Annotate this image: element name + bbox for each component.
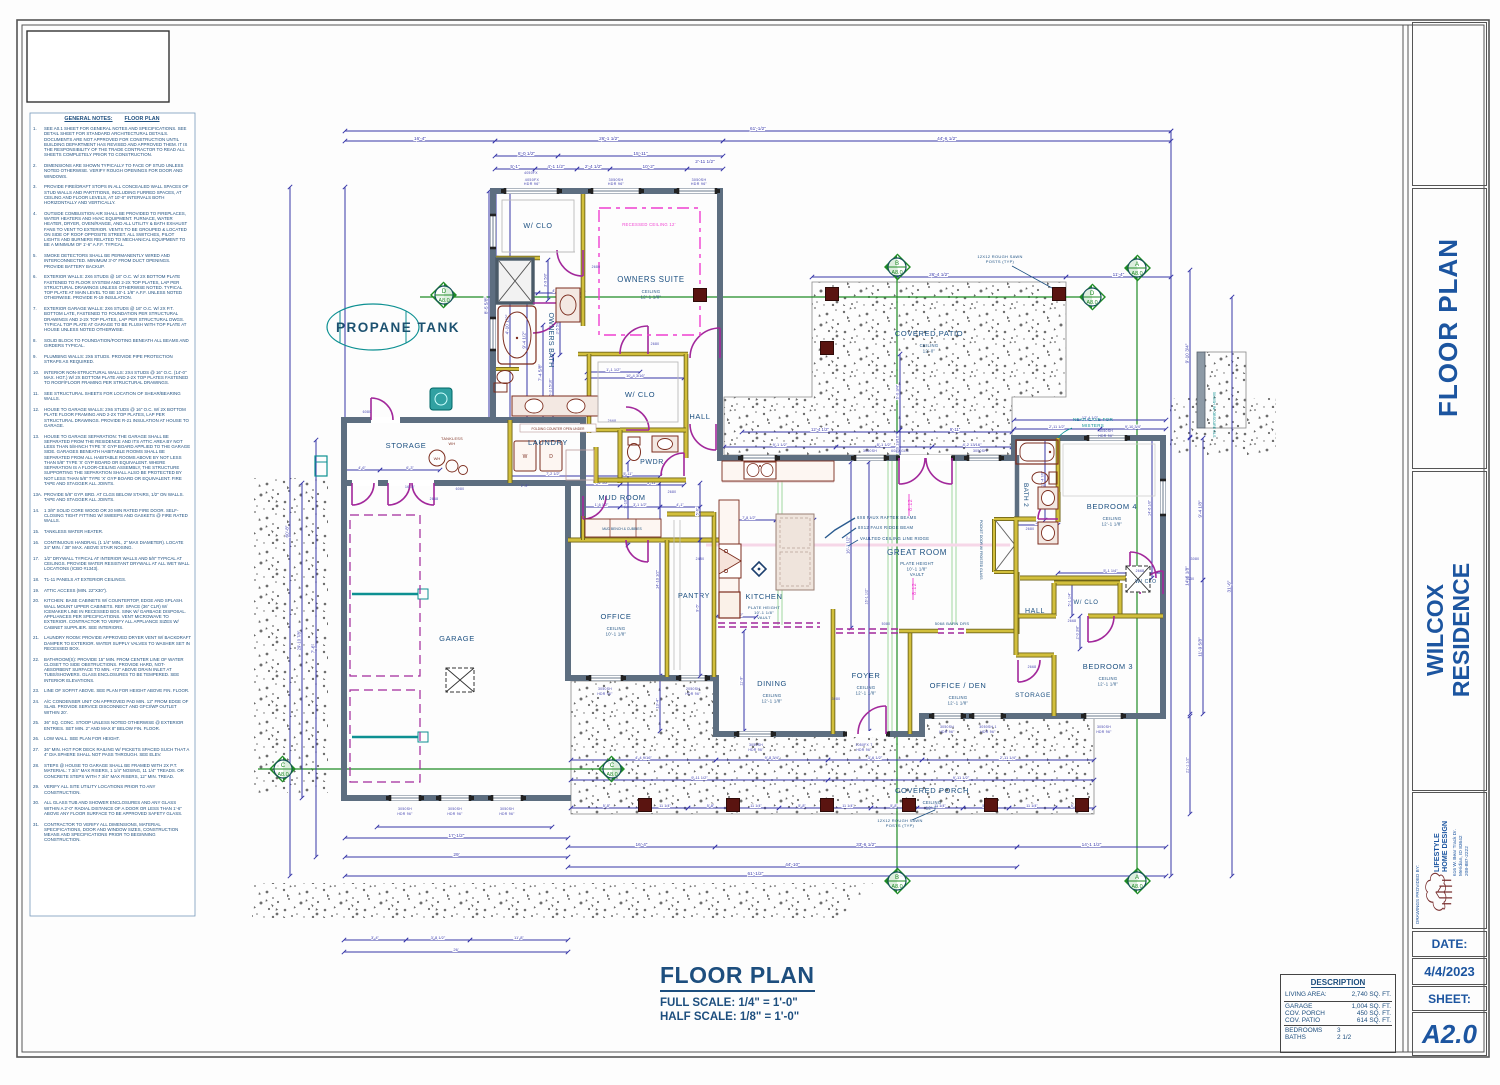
svg-text:VAULT: VAULT: [757, 615, 771, 620]
svg-text:HDR 96": HDR 96": [1096, 730, 1112, 734]
svg-text:VAULTED CEILING LINE RIDGE: VAULTED CEILING LINE RIDGE: [860, 536, 929, 541]
svg-text:7'-8 1/2": 7'-8 1/2": [742, 516, 756, 520]
svg-text:5'-8": 5'-8": [890, 804, 898, 808]
svg-text:3'-8 1/2": 3'-8 1/2": [431, 935, 446, 940]
svg-text:FOLDING COUNTER OPEN UNDER: FOLDING COUNTER OPEN UNDER: [532, 427, 586, 431]
svg-text:3050SH: 3050SH: [940, 725, 954, 729]
svg-text:2680: 2680: [651, 342, 660, 346]
svg-text:CEILING: CEILING: [763, 693, 782, 698]
svg-text:B: B: [895, 875, 899, 881]
svg-text:5040SH W/ OBSCURE GLS: 5040SH W/ OBSCURE GLS: [1212, 392, 1216, 438]
svg-text:4'-2 13/16": 4'-2 13/16": [962, 442, 982, 447]
svg-text:CEILING: CEILING: [949, 695, 968, 700]
svg-text:9'-1 1/2": 9'-1 1/2": [773, 442, 788, 447]
svg-text:3080: 3080: [1191, 557, 1200, 561]
svg-text:11'-8": 11'-8": [514, 935, 524, 940]
svg-text:6080: 6080: [456, 487, 465, 491]
svg-text:8'-1 1/2": 8'-1 1/2": [877, 442, 892, 447]
svg-text:11'-4": 11'-4": [1113, 272, 1125, 277]
svg-text:HDR 96": HDR 96": [748, 748, 764, 752]
svg-text:11'-9": 11'-9": [740, 676, 744, 686]
svg-text:CEILING: CEILING: [923, 800, 942, 805]
svg-text:STORAGE: STORAGE: [386, 441, 427, 450]
svg-text:4'-6": 4'-6": [358, 466, 366, 470]
svg-text:10'-4 3/16": 10'-4 3/16": [626, 373, 646, 378]
svg-text:2668: 2668: [430, 497, 439, 501]
svg-text:HDR 96": HDR 96": [597, 692, 613, 696]
svg-text:11 1/4": 11 1/4": [659, 804, 671, 808]
svg-text:3050SH: 3050SH: [749, 743, 763, 747]
svg-text:A8.0: A8.0: [438, 298, 449, 304]
svg-text:16'-1 1/2": 16'-1 1/2": [865, 588, 869, 605]
svg-text:3'-4": 3'-4": [371, 935, 380, 940]
svg-text:D: D: [442, 289, 447, 295]
svg-text:14'-10 1/2": 14'-10 1/2": [655, 569, 660, 589]
svg-text:2668: 2668: [1028, 665, 1037, 669]
svg-text:3'-6 1/2": 3'-6 1/2": [868, 755, 883, 760]
svg-text:LAUNDRY: LAUNDRY: [528, 438, 568, 447]
svg-text:7'-6": 7'-6": [311, 643, 316, 653]
svg-text:A8.0: A8.0: [1086, 300, 1097, 306]
svg-text:CEILING: CEILING: [642, 289, 661, 294]
svg-text:KITCHEN: KITCHEN: [745, 592, 782, 601]
svg-text:2'-11 1/4": 2'-11 1/4": [1000, 755, 1017, 760]
svg-text:2680: 2680: [668, 490, 677, 494]
svg-text:BATH 2: BATH 2: [1022, 483, 1029, 507]
svg-text:OWNERS SUITE: OWNERS SUITE: [617, 275, 684, 284]
svg-text:1050FX 7: 1050FX 7: [855, 743, 872, 747]
svg-text:5'-11": 5'-11": [623, 472, 633, 476]
svg-text:D: D: [1090, 291, 1095, 297]
svg-text:9'-4 1/8": 9'-4 1/8": [1198, 500, 1203, 518]
svg-text:CEILING: CEILING: [607, 626, 626, 631]
svg-text:MUD ROOM: MUD ROOM: [598, 493, 645, 502]
svg-text:2'-0 3/8": 2'-0 3/8": [1076, 625, 1080, 639]
svg-text:10'-2": 10'-2": [643, 164, 655, 169]
svg-text:WH: WH: [434, 456, 441, 461]
svg-text:3080: 3080: [1186, 577, 1195, 581]
svg-text:60'-8": 60'-8": [285, 525, 290, 537]
svg-text:POCKET DOOR W/ FROSTED GLASS: POCKET DOOR W/ FROSTED GLASS: [979, 520, 983, 580]
svg-text:11'-9 5/8": 11'-9 5/8": [1198, 637, 1203, 657]
svg-text:2'-11 1/2": 2'-11 1/2": [1049, 424, 1066, 429]
svg-text:OFFICE / DEN: OFFICE / DEN: [930, 681, 987, 690]
svg-text:W/ CLO: W/ CLO: [1074, 600, 1099, 606]
svg-text:12'-0": 12'-0": [923, 349, 936, 354]
svg-text:4'-1 1/2": 4'-1 1/2": [547, 164, 565, 169]
svg-text:13'-4": 13'-4": [655, 698, 660, 709]
svg-text:3050SH: 3050SH: [500, 807, 514, 811]
svg-text:12'-1 1/8": 12'-1 1/8": [948, 701, 969, 706]
svg-text:COVERED PATIO: COVERED PATIO: [895, 329, 963, 338]
svg-text:9'-10 3/4": 9'-10 3/4": [1185, 343, 1190, 363]
svg-text:VAULT: VAULT: [910, 572, 925, 577]
svg-text:44'-6 1/2": 44'-6 1/2": [937, 136, 957, 141]
svg-text:HDR 96": HDR 96": [608, 182, 625, 186]
svg-text:OFFICE: OFFICE: [600, 612, 631, 621]
svg-text:2680: 2680: [1026, 527, 1035, 531]
svg-text:3050SH: 3050SH: [973, 449, 987, 453]
svg-text:A8.0: A8.0: [891, 270, 902, 276]
svg-text:A8.0: A8.0: [277, 772, 288, 778]
svg-text:1'-6 1/2": 1'-6 1/2": [595, 503, 609, 507]
svg-text:14'-1 1/2": 14'-1 1/2": [1082, 842, 1102, 847]
svg-text:61'-1/2": 61'-1/2": [750, 126, 766, 131]
svg-text:A8.0: A8.0: [1131, 884, 1142, 890]
svg-text:11 1/4": 11 1/4": [842, 804, 854, 808]
svg-text:HDR 96": HDR 96": [691, 182, 708, 186]
svg-text:29'-10 7/8": 29'-10 7/8": [297, 630, 302, 650]
svg-text:CEILING: CEILING: [1099, 676, 1118, 681]
svg-text:2'-4 1/2": 2'-4 1/2": [585, 164, 603, 169]
svg-text:17'-1/2": 17'-1/2": [449, 833, 465, 838]
svg-text:5'-6": 5'-6": [695, 507, 700, 515]
svg-text:HDR 96": HDR 96": [447, 812, 463, 816]
svg-text:HDR 96": HDR 96": [685, 692, 701, 696]
svg-text:16'-8': 16'-8': [405, 485, 415, 489]
svg-text:A8.0: A8.0: [891, 884, 902, 890]
svg-text:5'-8": 5'-8": [603, 804, 611, 808]
svg-text:9'-11": 9'-11": [950, 427, 961, 432]
svg-text:9'-5": 9'-5": [695, 604, 700, 612]
svg-text:61'-1/2": 61'-1/2": [748, 871, 764, 876]
svg-text:WH: WH: [449, 442, 456, 446]
svg-text:C: C: [610, 763, 615, 769]
svg-text:NEAR EAVE FOR: NEAR EAVE FOR: [1073, 417, 1114, 422]
svg-text:12'-1 1/8": 12'-1 1/8": [762, 699, 783, 704]
svg-text:12'-1 1/8": 12'-1 1/8": [1102, 522, 1123, 527]
svg-text:MUD BENCH & CUBBIES: MUD BENCH & CUBBIES: [602, 527, 642, 531]
svg-text:PANTRY: PANTRY: [678, 591, 710, 600]
svg-text:2'-11 1/2": 2'-11 1/2": [695, 159, 715, 164]
svg-text:9'-8 3/4": 9'-8 3/4": [765, 755, 780, 760]
svg-text:A8.0: A8.0: [606, 772, 617, 778]
svg-text:5'-8": 5'-8": [707, 804, 715, 808]
svg-text:26'-1 1/2": 26'-1 1/2": [599, 136, 619, 141]
svg-text:5'-1": 5'-1": [510, 164, 520, 169]
svg-text:6080: 6080: [363, 410, 372, 414]
svg-text:11 1/4": 11 1/4": [750, 804, 762, 808]
svg-text:3050SH 1: 3050SH 1: [979, 725, 996, 729]
svg-text:C: C: [281, 763, 286, 769]
svg-text:CEILING: CEILING: [857, 685, 876, 690]
svg-text:6'-3 15/16": 6'-3 15/16": [549, 378, 553, 397]
svg-text:HDR 96": HDR 96": [499, 812, 515, 816]
svg-text:2050SH: 2050SH: [686, 687, 700, 691]
svg-text:3'-9 5/8": 3'-9 5/8": [544, 272, 548, 286]
svg-text:15'-11": 15'-11": [633, 151, 648, 156]
svg-text:HALL: HALL: [1025, 608, 1045, 615]
svg-text:26'-4 1/2": 26'-4 1/2": [929, 272, 949, 277]
svg-text:44'-10": 44'-10": [785, 862, 800, 867]
svg-text:5'-8": 5'-8": [798, 804, 806, 808]
svg-text:HALL: HALL: [689, 412, 710, 421]
svg-text:12'-0": 12'-0": [926, 806, 939, 811]
svg-text:FOYER: FOYER: [852, 671, 881, 680]
svg-text:W: W: [523, 454, 528, 460]
svg-text:9'-4 1/2": 9'-4 1/2": [522, 331, 527, 349]
svg-text:HDR 96": HDR 96": [980, 730, 996, 734]
svg-text:PROPANE TANK: PROPANE TANK: [336, 320, 460, 335]
svg-text:3050SH: 3050SH: [448, 807, 462, 811]
svg-text:3050SH: 3050SH: [598, 687, 612, 691]
svg-text:GREAT ROOM: GREAT ROOM: [887, 548, 947, 557]
svg-text:10'-1 1/8": 10'-1 1/8": [606, 632, 627, 637]
svg-text:W/ CLO: W/ CLO: [523, 221, 552, 230]
svg-text:14'-6 1/8": 14'-6 1/8": [1185, 566, 1190, 586]
svg-text:B: B: [895, 261, 899, 267]
svg-text:COVERED PORCH: COVERED PORCH: [895, 786, 969, 795]
svg-text:9'-10 3/4": 9'-10 3/4": [1125, 424, 1142, 429]
svg-text:29': 29': [453, 852, 459, 857]
svg-text:7'-2 1/2": 7'-2 1/2": [546, 472, 560, 476]
svg-text:2668: 2668: [1068, 619, 1077, 623]
svg-text:33'-6 1/2": 33'-6 1/2": [856, 842, 876, 847]
svg-text:BEDROOM 3: BEDROOM 3: [1083, 662, 1133, 671]
svg-text:9'-11 1/2": 9'-11 1/2": [953, 775, 970, 780]
svg-text:HDR 96": HDR 96": [524, 182, 541, 186]
svg-text:5080: 5080: [882, 622, 891, 626]
svg-text:W/ CLO: W/ CLO: [1135, 579, 1156, 585]
svg-text:12'-1 1/8": 12'-1 1/8": [641, 295, 662, 300]
svg-text:4'-4 9/16": 4'-4 9/16": [635, 755, 652, 760]
svg-text:11 1/4": 11 1/4": [1026, 804, 1038, 808]
svg-text:6'-0 1/2": 6'-0 1/2": [518, 151, 536, 156]
svg-text:3080: 3080: [832, 697, 841, 701]
svg-text:POSTS (TYP): POSTS (TYP): [886, 823, 915, 828]
svg-text:16'-4": 16'-4": [636, 842, 648, 847]
svg-text:12'-1 1/8": 12'-1 1/8": [856, 691, 877, 696]
svg-text:TANKLESS: TANKLESS: [441, 437, 463, 441]
svg-text:A: A: [1135, 262, 1139, 268]
svg-text:W/ CLO: W/ CLO: [625, 390, 655, 399]
svg-text:6'-0 3/4": 6'-0 3/4": [895, 384, 900, 399]
svg-text:6'-3": 6'-3": [406, 466, 414, 470]
svg-text:OWNERS BATH: OWNERS BATH: [547, 313, 554, 368]
svg-text:A8.0: A8.0: [1131, 271, 1142, 277]
svg-text:5'-1 1/4": 5'-1 1/4": [1068, 592, 1072, 606]
svg-text:2668: 2668: [1136, 569, 1145, 573]
svg-text:STORAGE: STORAGE: [1015, 692, 1051, 699]
svg-text:7'-4 5/8": 7'-4 5/8": [538, 364, 543, 382]
svg-text:HDR 96": HDR 96": [397, 812, 413, 816]
svg-text:A: A: [1135, 875, 1139, 881]
svg-text:PWDR: PWDR: [640, 459, 664, 466]
svg-text:BEDROOM 4: BEDROOM 4: [1087, 502, 1137, 511]
svg-text:21'-1 1/2": 21'-1 1/2": [1186, 756, 1190, 773]
svg-text:MISTERS: MISTERS: [1082, 423, 1104, 428]
svg-text:5068 BARN DRS: 5068 BARN DRS: [935, 621, 970, 626]
svg-text:3050SH: 3050SH: [398, 807, 412, 811]
svg-text:POSTS (TYP): POSTS (TYP): [986, 259, 1015, 264]
svg-text:12'-4 1/2": 12'-4 1/2": [811, 427, 829, 432]
svg-text:4'-1": 4'-1": [676, 503, 684, 507]
svg-text:31'-6": 31'-6": [1227, 580, 1232, 592]
svg-text:3050SH: 3050SH: [863, 449, 877, 453]
svg-text:16'-4": 16'-4": [414, 136, 426, 141]
svg-text:D: D: [549, 454, 553, 460]
svg-text:PLATE HEIGHT: PLATE HEIGHT: [900, 561, 934, 566]
svg-text:3'-1 1/2": 3'-1 1/2": [633, 503, 647, 507]
svg-text:2680: 2680: [592, 265, 601, 269]
svg-text:12'-1 1/8": 12'-1 1/8": [1098, 682, 1119, 687]
svg-text:HDR 96": HDR 96": [856, 748, 872, 752]
svg-text:14'-6 1/8": 14'-6 1/8": [1148, 499, 1152, 516]
svg-text:10'-1 1/8": 10'-1 1/8": [907, 567, 928, 572]
svg-text:26': 26': [453, 947, 458, 952]
svg-text:CEILING: CEILING: [920, 343, 939, 348]
svg-text:8'-5 5/8": 8'-5 5/8": [484, 297, 489, 315]
svg-text:4'-10 1/2": 4'-10 1/2": [505, 314, 510, 334]
svg-text:3050SH: 3050SH: [1099, 429, 1113, 433]
svg-text:9'-11 1/2": 9'-11 1/2": [691, 775, 708, 780]
svg-text:DINING: DINING: [757, 679, 787, 688]
svg-text:1'-1 1/2": 1'-1 1/2": [606, 367, 621, 372]
svg-text:RECESSED CEILING 12': RECESSED CEILING 12': [622, 222, 676, 227]
svg-text:5'-1 1/4": 5'-1 1/4": [1103, 568, 1118, 573]
svg-text:CEILING: CEILING: [1103, 516, 1122, 521]
svg-text:2'-8": 2'-8": [521, 484, 530, 488]
svg-text:4050FX: 4050FX: [524, 171, 538, 175]
svg-text:HDR 96": HDR 96": [939, 730, 955, 734]
svg-text:6080 GLS: 6080 GLS: [891, 449, 909, 453]
svg-text:6X8 FAUX RAFTER BEAMS: 6X8 FAUX RAFTER BEAMS: [857, 515, 917, 520]
svg-text:8X12 FAUX RIDGE BEAM: 8X12 FAUX RIDGE BEAM: [858, 525, 914, 530]
svg-text:3050SH: 3050SH: [1097, 725, 1111, 729]
svg-text:HDR 96": HDR 96": [1098, 434, 1114, 438]
svg-text:GARAGE: GARAGE: [439, 634, 475, 643]
